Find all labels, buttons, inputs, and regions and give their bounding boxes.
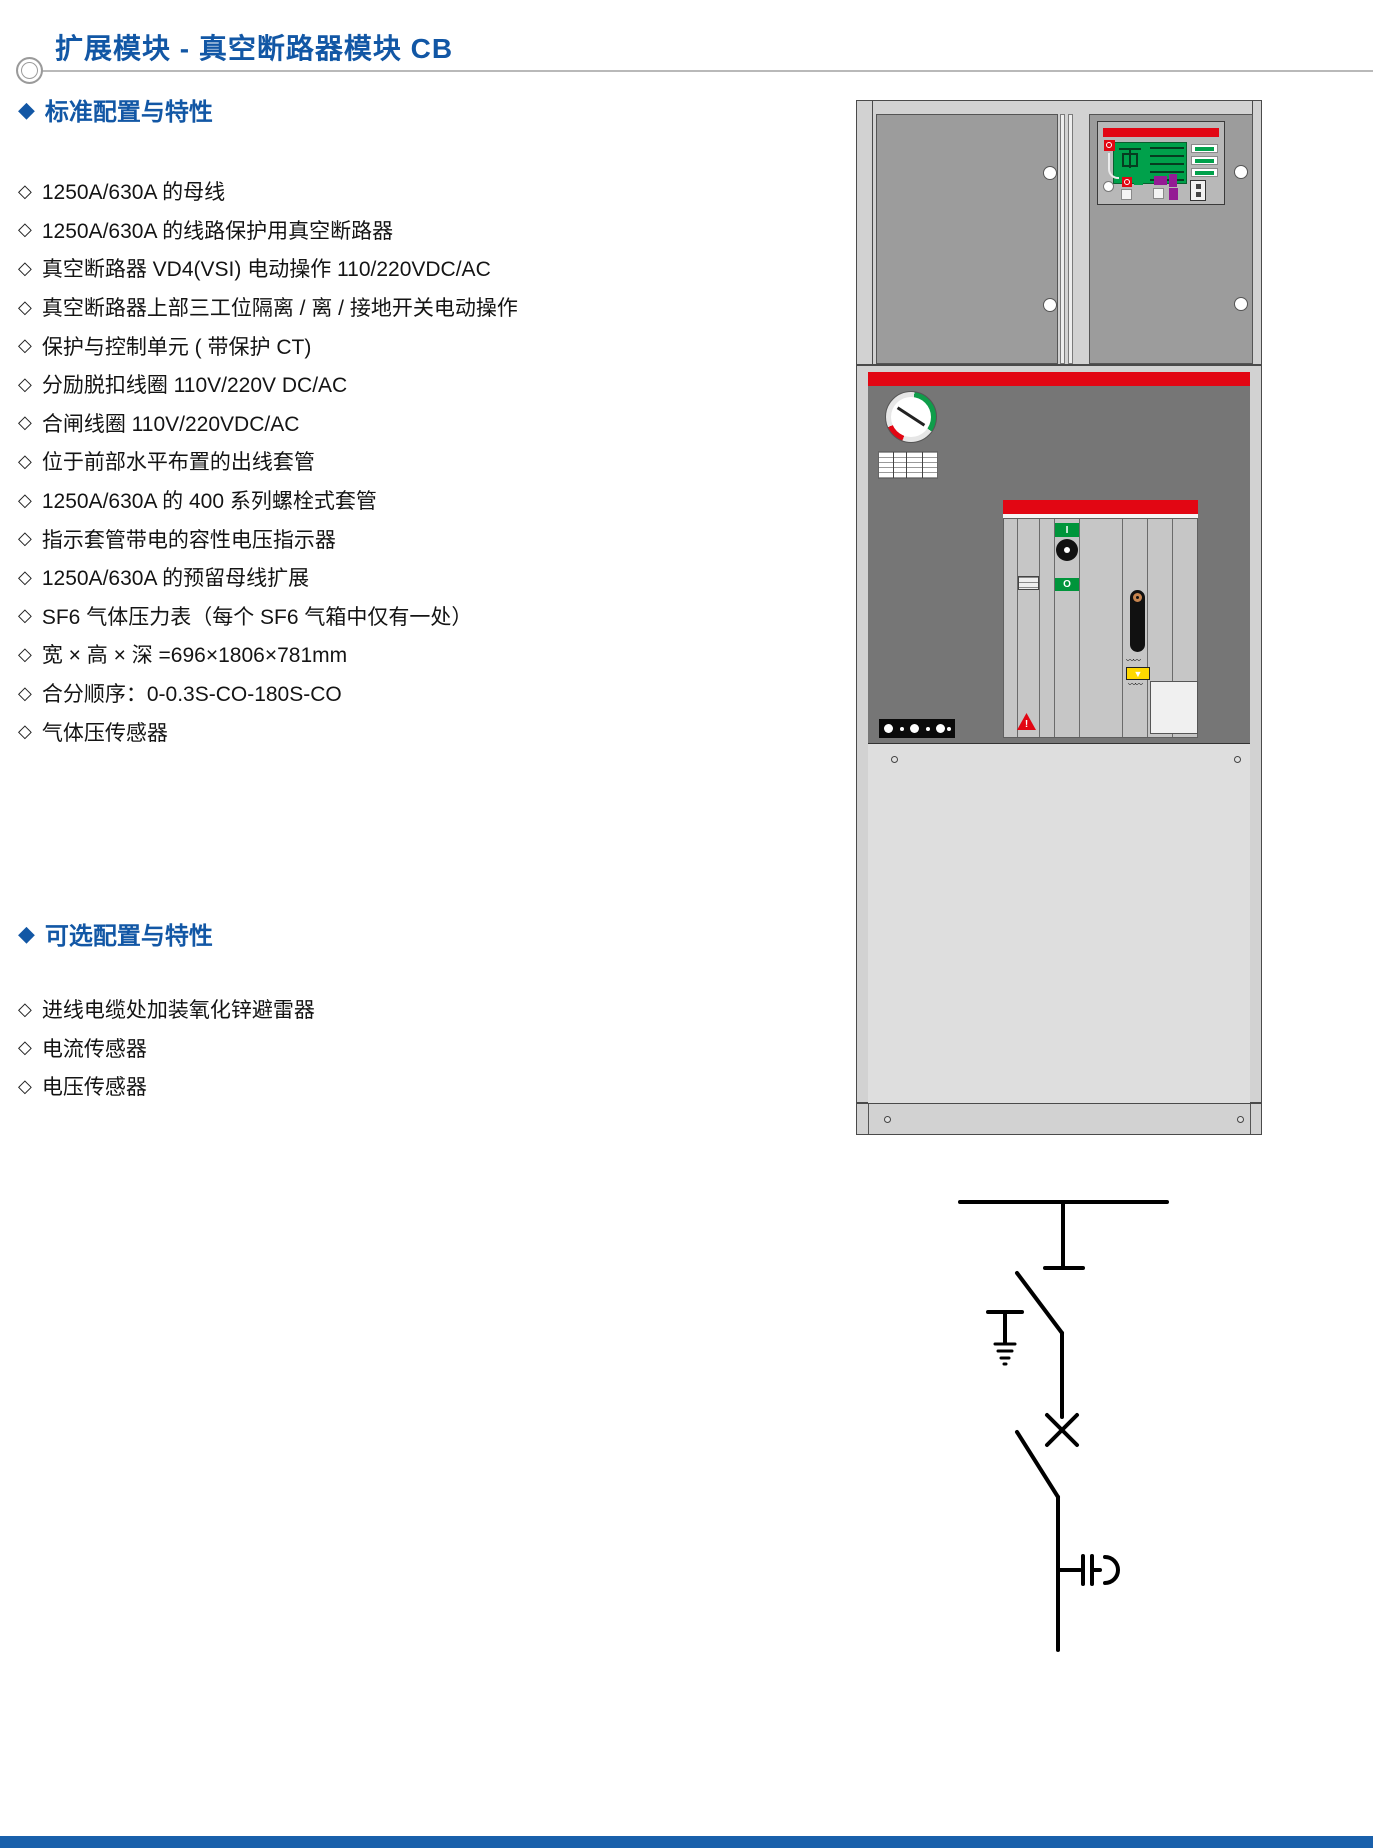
relay-red-button [1122,177,1132,187]
feature-item: ◇真空断路器 VD4(VSI) 电动操作 110/220VDC/AC [18,249,708,288]
relay-red-button [1104,140,1115,151]
feature-text: 保护与控制单元 ( 带保护 CT) [42,331,311,361]
feature-text: 1250A/630A 的母线 [42,176,225,206]
panel-seam [1147,519,1148,737]
screw [884,1116,891,1123]
feature-item: ◇1250A/630A 的预留母线扩展 [18,558,708,597]
gauge-needle [897,407,925,427]
relay-purple-button [1169,174,1177,187]
optional-section-title: 可选配置与特性 [45,916,213,951]
relay-purple-button [1154,176,1167,185]
feature-item: ◇1250A/630A 的线路保护用真空断路器 [18,211,708,250]
section-diamond-icon: ◆ [18,921,35,947]
feature-text: 合闸线圈 110V/220VDC/AC [42,408,300,438]
relay-white-button [1153,188,1164,199]
door-gap-strip [1060,114,1065,364]
feature-text: 指示套管带电的容性电压指示器 [42,524,336,554]
voltage-indicator-strip [879,719,955,738]
item-diamond-icon: ◇ [18,528,32,549]
standard-feature-list: ◇1250A/630A 的母线 ◇1250A/630A 的线路保护用真空断路器 … [18,172,708,751]
close-button: I [1055,523,1079,537]
standard-section-heading: ◆ 标准配置与特性 [18,92,213,127]
item-diamond-icon: ◇ [18,567,32,588]
feature-text: SF6 气体压力表（每个 SF6 气箱中仅有一处） [42,601,473,631]
indicator-dot [910,724,919,733]
feature-item: ◇真空断路器上部三工位隔离 / 离 / 接地开关电动操作 [18,288,708,327]
vent-grille [1150,681,1198,734]
spring-charge-indicator: ▼ [1126,667,1150,680]
item-diamond-icon: ◇ [18,335,32,356]
cable-capacitor-indicator [1058,1556,1118,1584]
item-diamond-icon: ◇ [18,683,32,704]
earth-switch [988,1312,1022,1364]
screw [1237,1116,1244,1123]
feature-text: 进线电缆处加装氧化锌避雷器 [42,994,315,1024]
item-diamond-icon: ◇ [18,374,32,395]
red-stripe [868,372,1250,386]
top-compartment [856,100,1262,365]
panel-seam [1079,519,1080,737]
led-indicator [1191,156,1218,165]
indicator-dot [936,724,945,733]
door-gap-strip [1068,114,1073,364]
warning-exclamation: ! [1025,719,1028,730]
feature-text: 分励脱扣线圈 110V/220V DC/AC [42,369,347,399]
feature-text: 气体压传感器 [42,717,168,747]
feature-item: ◇合闸线圈 110V/220VDC/AC [18,404,708,443]
three-position-switch [1017,1273,1062,1417]
feature-item: ◇电压传感器 [18,1067,708,1106]
screw [1234,756,1241,763]
item-diamond-icon: ◇ [18,297,32,318]
feature-item: ◇指示套管带电的容性电压指示器 [18,519,708,558]
feature-item: ◇电流传感器 [18,1029,708,1068]
feature-item: ◇合分顺序：0-0.3S-CO-180S-CO [18,674,708,713]
indicator-dot [926,727,930,731]
feature-text: 电流传感器 [42,1033,147,1063]
feature-text: 合分顺序：0-0.3S-CO-180S-CO [42,678,342,708]
feature-item: ◇气体压传感器 [18,712,708,751]
door-knob [1043,298,1057,312]
relay-test-connector [1190,180,1206,201]
mimic-breaker-box [1122,153,1138,167]
panel-body: I O 〰〰 ▼ 〰〰 ! [1003,518,1198,738]
feature-text: 1250A/630A 的线路保护用真空断路器 [42,215,393,245]
panel-seam [1054,519,1055,737]
item-diamond-icon: ◇ [18,721,32,742]
rating-plate [878,451,938,479]
open-button: O [1055,578,1079,591]
right-side-strip [1252,101,1261,364]
feature-text: 电压传感器 [42,1071,147,1101]
warning-triangle-icon: ! [1017,713,1036,730]
feature-item: ◇进线电缆处加装氧化锌避雷器 [18,990,708,1029]
page-title: 扩展模块 - 真空断路器模块 CB [55,27,453,67]
panel-seam [1017,519,1018,737]
sf6-pressure-gauge [885,391,937,443]
corner-ring-icon [16,57,43,84]
busbar-line [960,1202,1167,1268]
relay-curve-line [1108,153,1119,179]
lower-compartment: I O 〰〰 ▼ 〰〰 ! [856,365,1262,1103]
operating-shaft-slot [1130,590,1145,652]
feature-item: ◇SF6 气体压力表（每个 SF6 气箱中仅有一处） [18,597,708,636]
feature-item: ◇1250A/630A 的 400 系列螺栓式套管 [18,481,708,520]
optional-feature-list: ◇进线电缆处加装氧化锌避雷器 ◇电流传感器 ◇电压传感器 [18,990,708,1106]
feature-item: ◇保护与控制单元 ( 带保护 CT) [18,326,708,365]
feature-text: 位于前部水平布置的出线套管 [42,446,315,476]
feature-text: 宽 × 高 × 深 =696×1806×781mm [42,639,347,669]
relay-knob [1103,181,1114,192]
mini-label-plate [1018,576,1039,590]
relay-purple-button [1169,188,1178,200]
feature-item: ◇宽 × 高 × 深 =696×1806×781mm [18,635,708,674]
indicator-dot [900,727,904,731]
item-diamond-icon: ◇ [18,490,32,511]
optional-section-heading: ◆ 可选配置与特性 [18,916,213,951]
feature-text: 真空断路器 VD4(VSI) 电动操作 110/220VDC/AC [42,253,491,283]
item-diamond-icon: ◇ [18,219,32,240]
protection-relay-panel [1097,121,1225,205]
indicator-dot [947,727,951,731]
door-knob [1234,297,1248,311]
led-indicator [1191,168,1218,177]
led-indicator [1191,144,1218,153]
relay-green-button [1134,178,1143,185]
door-knob [1043,166,1057,180]
panel-red-bar [1003,500,1198,514]
feature-item: ◇1250A/630A 的母线 [18,172,708,211]
feature-text: 1250A/630A 的 400 系列螺栓式套管 [42,485,377,515]
item-diamond-icon: ◇ [18,644,32,665]
breaker-blade [1017,1432,1058,1650]
item-diamond-icon: ◇ [18,1037,32,1058]
gauge-face [891,397,931,437]
item-diamond-icon: ◇ [18,451,32,472]
standard-section-title: 标准配置与特性 [45,92,213,127]
door-knob [1234,165,1248,179]
spring-zigzag-icon: 〰〰 [1126,658,1140,664]
screw [891,756,898,763]
feature-text: 真空断路器上部三工位隔离 / 离 / 接地开关电动操作 [42,292,518,322]
brochure-page: 扩展模块 - 真空断路器模块 CB ◆ 标准配置与特性 ◇1250A/630A … [0,0,1373,1848]
relay-white-button [1121,189,1132,200]
panel-seam [1039,519,1040,737]
breaker-operation-panel: I O 〰〰 ▼ 〰〰 ! [1003,494,1198,738]
section-diamond-icon: ◆ [18,97,35,123]
left-side-strip [857,101,873,364]
item-diamond-icon: ◇ [18,181,32,202]
circuit-breaker-x [1047,1415,1077,1445]
switchgear-illustration: I O 〰〰 ▼ 〰〰 ! [856,100,1262,1135]
left-door [876,114,1058,364]
plinth-seam [868,1104,869,1134]
header-divider [38,70,1373,72]
item-diamond-icon: ◇ [18,999,32,1020]
plinth-seam [1250,1104,1251,1134]
item-diamond-icon: ◇ [18,412,32,433]
panel-seam [1122,519,1123,737]
relay-red-bar [1103,128,1219,137]
spring-zigzag-icon: 〰〰 [1128,682,1142,688]
feature-item: ◇分励脱扣线圈 110V/220V DC/AC [18,365,708,404]
feature-text: 1250A/630A 的预留母线扩展 [42,562,309,592]
plinth [856,1103,1262,1135]
indicator-dot [884,724,893,733]
selector-knob [1056,539,1078,561]
feature-item: ◇位于前部水平布置的出线套管 [18,442,708,481]
item-diamond-icon: ◇ [18,258,32,279]
down-arrow-icon: ▼ [1134,669,1143,679]
footer-bar [0,1836,1373,1848]
item-diamond-icon: ◇ [18,605,32,626]
lower-door [868,743,1250,1103]
item-diamond-icon: ◇ [18,1076,32,1097]
single-line-diagram [930,1180,1190,1680]
